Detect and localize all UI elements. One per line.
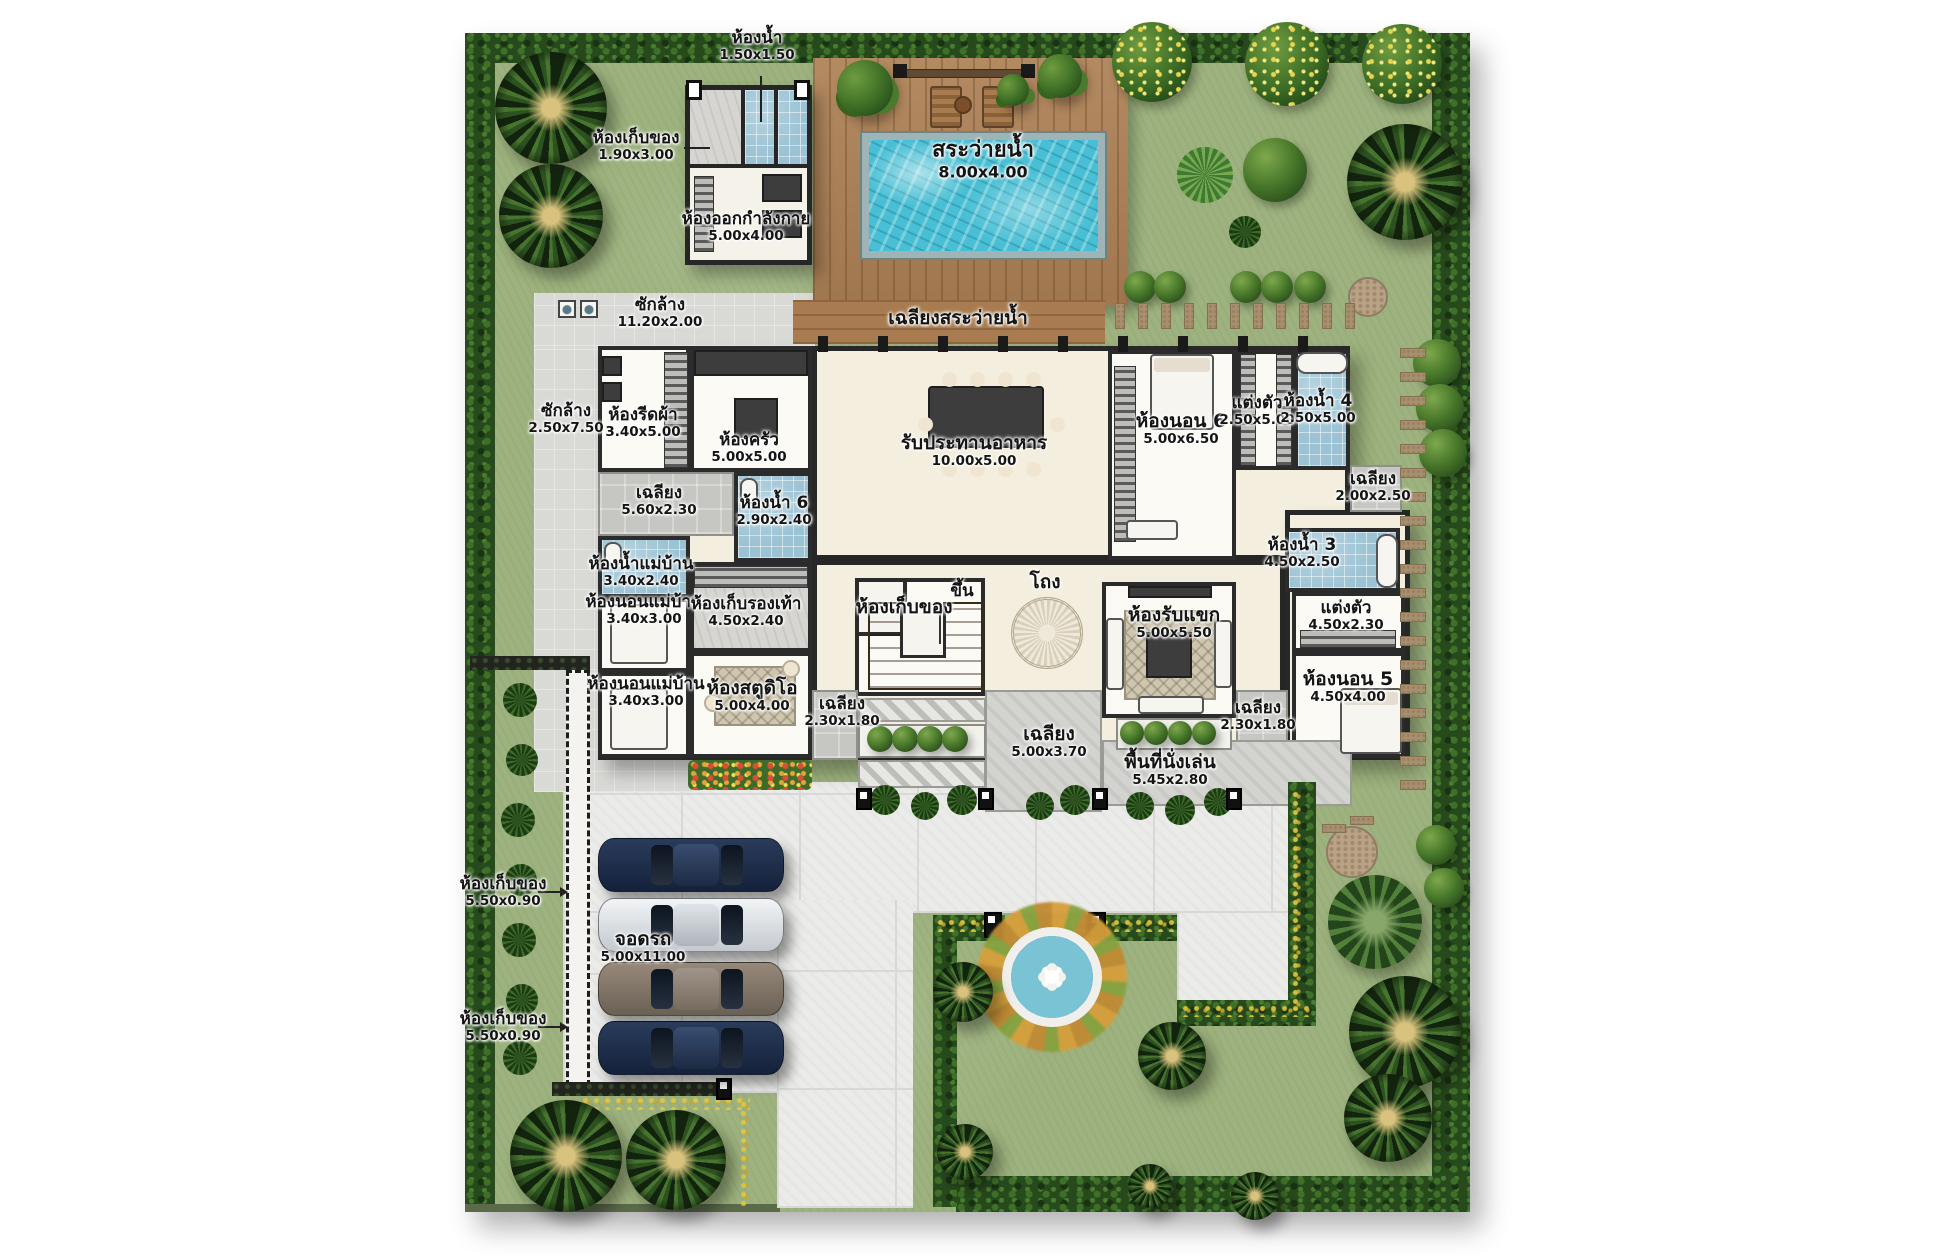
studio-chair <box>782 660 800 678</box>
room-name: ห้องสตูดิโอ <box>706 677 797 699</box>
room-dimension: 2.00x2.50 <box>1335 489 1410 505</box>
site-edge-shadow <box>465 1204 780 1212</box>
stepping-stone <box>1400 540 1426 550</box>
fern-icon <box>506 744 538 776</box>
bush-icon <box>892 726 918 752</box>
bed6-wardrobe <box>1114 366 1136 542</box>
room-name: โถง <box>1030 571 1061 593</box>
room-name: ห้องนอนแม่บ้าน <box>587 674 704 694</box>
room-dimension: 5.00x4.00 <box>706 699 797 715</box>
pergola-post <box>893 64 907 78</box>
room-label-gym: ห้องออกกำลังกาย5.00x4.00 <box>682 209 811 245</box>
room-dimension: 2.50x7.50 <box>528 421 603 437</box>
stepping-stone <box>1400 516 1426 526</box>
fern-icon <box>911 792 939 820</box>
room-label-gstor2: ห้องเก็บของ5.50x0.90 <box>460 1009 547 1045</box>
room-name: ห้องน้ำแม่บ้าน <box>588 554 693 574</box>
stepping-stone <box>1400 588 1426 598</box>
room-dimension: 4.50x2.50 <box>1264 555 1339 571</box>
room-label-ironing: ห้องรีดผ้า3.40x5.00 <box>605 405 680 441</box>
garage-wall-bottom <box>552 1082 722 1096</box>
fern-icon <box>1026 792 1054 820</box>
stepping-stone <box>1400 732 1426 742</box>
bush-icon <box>1124 271 1156 303</box>
sofa <box>1138 696 1204 714</box>
room-dimension: 5.50x0.90 <box>460 1029 547 1045</box>
stepping-stone <box>1400 612 1426 622</box>
wall-post <box>1058 336 1068 352</box>
wall-post <box>938 336 948 352</box>
stepping-stone <box>1115 303 1125 329</box>
stepping-stone <box>1322 303 1332 329</box>
room-label-laundry_left: ซักล้าง2.50x7.50 <box>528 401 603 437</box>
staghorn-tree-icon <box>1328 875 1422 969</box>
tree-icon <box>997 74 1029 106</box>
fern-icon <box>1126 792 1154 820</box>
stepping-stone <box>1230 303 1240 329</box>
bush-icon <box>1416 825 1456 865</box>
fern-icon <box>870 785 900 815</box>
stepping-stone <box>1138 303 1148 329</box>
hall-medallion <box>1011 597 1083 669</box>
bush-icon <box>1168 721 1192 745</box>
room-name: ห้องน้ำ <box>719 28 794 48</box>
garage-post <box>716 1078 732 1100</box>
flower-strip <box>1180 1004 1310 1017</box>
leader-arrow <box>560 1022 568 1032</box>
room-name: ห้องน้ำ 3 <box>1264 535 1339 555</box>
room-name: เฉลียง <box>1220 698 1295 718</box>
room-name: ห้องรับแขก <box>1128 604 1220 626</box>
room-name: สระว่ายน้ำ <box>932 138 1034 164</box>
bush-icon <box>1192 721 1216 745</box>
floor-plan-page: ห้องน้ำ1.50x1.50ห้องเก็บของ1.90x3.00ห้อง… <box>0 0 1960 1260</box>
leader-line <box>684 147 710 149</box>
garage-storage-band <box>566 670 590 1086</box>
fern-icon <box>503 683 537 717</box>
room-label-parking: จอดรถ5.00x11.00 <box>601 928 686 966</box>
room-label-pool: สระว่ายน้ำ8.00x4.00 <box>932 138 1034 183</box>
wall-post <box>818 336 828 352</box>
bush-icon <box>1261 271 1293 303</box>
bathtub-3 <box>1376 534 1398 588</box>
driveway-exit <box>777 900 913 1208</box>
kitchen-counter <box>694 350 808 376</box>
room-label-terr_entry_r: เฉลียง2.30x1.80 <box>1220 698 1295 734</box>
hedge-bottom <box>956 1176 1470 1212</box>
stepping-stone <box>1207 303 1217 329</box>
palm-tree-icon <box>495 52 607 164</box>
stepping-stone <box>1350 816 1374 825</box>
stepping-stone <box>1400 684 1426 694</box>
palm-tree-icon <box>1347 124 1463 240</box>
room-dimension: 4.50x2.40 <box>691 614 802 630</box>
bush-icon <box>1144 721 1168 745</box>
palm-tree-icon <box>1138 1022 1206 1090</box>
room-label-living: ห้องรับแขก5.00x5.50 <box>1128 604 1220 642</box>
bush-icon <box>1419 429 1467 477</box>
room-name: ขึ้น <box>950 581 973 601</box>
room-label-laundry_strip: ซักล้าง11.20x2.00 <box>618 295 703 331</box>
stepping-stone <box>1400 396 1426 406</box>
palm-tree-icon <box>626 1110 726 1210</box>
dining-chairs <box>942 372 957 387</box>
room-name: ห้องนอนแม่บ้าน <box>585 592 702 612</box>
palm-tree-icon <box>1344 1074 1432 1162</box>
fern-icon <box>503 1041 537 1075</box>
car-icon <box>598 838 784 892</box>
room-dimension: 2.30x1.80 <box>1220 718 1295 734</box>
porch-walk-hatch <box>858 760 986 788</box>
storage-room-top <box>690 90 745 168</box>
wall-post <box>794 80 810 100</box>
pergola-post <box>1021 64 1035 78</box>
room-name: รับประทานอาหาร <box>901 432 1047 454</box>
wall-post <box>878 336 888 352</box>
stepping-stone <box>1345 303 1355 329</box>
room-dimension: 3.40x3.00 <box>585 612 702 628</box>
room-name: ห้องออกกำลังกาย <box>682 209 811 229</box>
room-dimension: 4.50x4.00 <box>1303 690 1393 706</box>
room-label-bath4: ห้องน้ำ 42.50x5.00 <box>1280 391 1355 427</box>
porch-column <box>1226 788 1242 810</box>
room-name: ห้องเก็บของ <box>593 128 680 148</box>
room-label-sitting: พื้นที่นั่งเล่น5.45x2.80 <box>1124 751 1215 789</box>
gravel-circle <box>1326 826 1378 878</box>
room-name: เฉลียง <box>1335 469 1410 489</box>
room-dimension: 3.40x3.00 <box>587 694 704 710</box>
room-dimension: 10.00x5.00 <box>901 454 1047 470</box>
room-label-maid_bed2: ห้องนอนแม่บ้าน3.40x3.00 <box>587 674 704 710</box>
fountain-flower <box>1045 970 1059 984</box>
room-label-bed5: ห้องนอน 54.50x4.00 <box>1303 668 1393 706</box>
room-name: ห้องนอน 5 <box>1303 668 1393 690</box>
stepping-stone <box>1276 303 1286 329</box>
room-dimension: 2.90x2.40 <box>736 513 811 529</box>
room-name: พื้นที่นั่งเล่น <box>1124 751 1215 773</box>
room-label-dining: รับประทานอาหาร10.00x5.00 <box>901 432 1047 470</box>
room-label-terr_2025: เฉลียง2.00x2.50 <box>1335 469 1410 505</box>
bush-icon <box>1294 271 1326 303</box>
room-dimension: 5.50x0.90 <box>460 894 547 910</box>
room-name: ห้องน้ำ 4 <box>1280 391 1355 411</box>
fern-icon <box>501 803 535 837</box>
room-label-maid_bed1: ห้องนอนแม่บ้าน3.40x3.00 <box>585 592 702 628</box>
bed6-pillows <box>1154 358 1210 372</box>
car-icon <box>598 1021 784 1075</box>
flower-strip <box>1290 790 1304 1010</box>
flower-strip <box>738 1100 752 1206</box>
room-name: เฉลียง <box>1011 723 1086 745</box>
palm-tree-icon <box>1349 976 1461 1088</box>
room-dimension: 5.00x6.50 <box>1136 432 1226 448</box>
wall-post <box>998 336 1008 352</box>
tree-icon <box>1038 54 1082 98</box>
room-name: ห้องเก็บของ <box>856 596 953 618</box>
room-dimension: 5.60x2.30 <box>621 503 696 519</box>
washer-icon <box>558 300 576 318</box>
room-name: ห้องเก็บรองเท้า <box>691 594 802 614</box>
stepping-stone <box>1400 420 1426 430</box>
fern-icon <box>502 923 536 957</box>
stepping-stone <box>1400 444 1426 454</box>
garage-wall-top <box>470 656 590 670</box>
room-label-studio: ห้องสตูดิโอ5.00x4.00 <box>706 677 797 715</box>
stepping-stone <box>1184 303 1194 329</box>
room-label-kitchen: ห้องครัว5.00x5.00 <box>711 430 786 466</box>
leader-line <box>760 76 762 122</box>
room-dimension: 2.50x5.00 <box>1280 411 1355 427</box>
room-name: จอดรถ <box>601 928 686 950</box>
fern-icon <box>1060 785 1090 815</box>
room-label-shoe: ห้องเก็บรองเท้า4.50x2.40 <box>691 594 802 630</box>
room-label-bath3: ห้องน้ำ 34.50x2.50 <box>1264 535 1339 571</box>
palm-tree-icon <box>933 962 993 1022</box>
bathtub-4 <box>1296 352 1348 374</box>
bush-icon <box>917 726 943 752</box>
deck-table-icon <box>954 96 972 114</box>
room-label-dress5: แต่งตัว4.50x2.30 <box>1308 598 1383 634</box>
stepping-stone <box>1400 660 1426 670</box>
room-dimension: 11.20x2.00 <box>618 315 703 331</box>
room-label-terr_56: เฉลียง5.60x2.30 <box>621 483 696 519</box>
stepping-stone <box>1400 348 1426 358</box>
spider-plant-icon <box>1177 147 1233 203</box>
shoe-rack <box>694 566 808 588</box>
room-name: ห้องครัว <box>711 430 786 450</box>
tree-icon <box>837 60 893 116</box>
palm-tree-icon <box>1128 1164 1172 1208</box>
laundry-appliance <box>602 382 622 402</box>
stepping-stone <box>1400 780 1426 790</box>
bush-icon <box>1424 868 1464 908</box>
palm-tree-icon <box>510 1100 622 1212</box>
stepping-stone <box>1400 636 1426 646</box>
room-dimension: 5.00x5.50 <box>1128 626 1220 642</box>
fern-icon <box>947 785 977 815</box>
room-name: ซักล้าง <box>618 295 703 315</box>
stepping-stone <box>1400 708 1426 718</box>
room-dimension: 3.40x2.40 <box>588 574 693 590</box>
room-dimension: 5.00x11.00 <box>601 950 686 966</box>
room-label-bath_top: ห้องน้ำ1.50x1.50 <box>719 28 794 64</box>
room-dimension: 5.00x5.00 <box>711 450 786 466</box>
room-dimension: 3.40x5.00 <box>605 425 680 441</box>
room-name: ซักล้าง <box>528 401 603 421</box>
porch-column <box>978 788 994 810</box>
room-dimension: 1.90x3.00 <box>593 148 680 164</box>
room-name: ห้องเก็บของ <box>460 1009 547 1029</box>
bush-icon <box>942 726 968 752</box>
room-label-terr_entry_c: เฉลียง5.00x3.70 <box>1011 723 1086 761</box>
gym-wall <box>690 164 807 168</box>
washer-icon <box>580 300 598 318</box>
bath-partition-wall <box>774 90 778 168</box>
sofa <box>1106 618 1124 690</box>
room-dimension: 2.30x1.80 <box>804 714 879 730</box>
room-name: ห้องนอน 6 <box>1136 410 1226 432</box>
laundry-appliance <box>602 356 622 376</box>
room-label-bed6: ห้องนอน 65.00x6.50 <box>1136 410 1226 448</box>
driveway-stub <box>1177 913 1288 1013</box>
room-name: เฉลียง <box>804 694 879 714</box>
fern-icon <box>1229 216 1261 248</box>
bush-icon <box>1154 271 1186 303</box>
flower-bed <box>688 760 812 790</box>
tv-console <box>1128 586 1212 598</box>
room-label-bath6: ห้องน้ำ 62.90x2.40 <box>736 493 811 529</box>
fern-icon <box>1165 795 1195 825</box>
porch-column <box>856 788 872 810</box>
room-name: เฉลียงสระว่ายน้ำ <box>888 307 1028 329</box>
stepping-stone <box>1322 824 1346 833</box>
room-label-storage_top: ห้องเก็บของ1.90x3.00 <box>593 128 680 164</box>
stepping-stone <box>1400 564 1426 574</box>
wall-post <box>1178 336 1188 352</box>
room-name: ห้องเก็บของ <box>460 874 547 894</box>
room-dimension: 4.50x2.30 <box>1308 618 1383 634</box>
room-label-terr_entry_l: เฉลียง2.30x1.80 <box>804 694 879 730</box>
porch-column <box>1092 788 1108 810</box>
bush-icon <box>1120 721 1144 745</box>
stepping-stone <box>1161 303 1171 329</box>
room-dimension: 5.00x3.70 <box>1011 745 1086 761</box>
palm-tree-icon <box>499 164 603 268</box>
wall-post <box>686 80 702 100</box>
room-dimension: 5.00x4.00 <box>682 229 811 245</box>
leader-arrow <box>560 887 568 897</box>
south-west-apron <box>534 758 700 792</box>
car-icon <box>598 962 784 1016</box>
flowering-bush-icon <box>1245 22 1329 106</box>
flowering-bush-icon <box>1112 22 1192 102</box>
stepping-stone <box>1400 756 1426 766</box>
palm-tree-icon <box>1231 1172 1279 1220</box>
bush-icon <box>1230 271 1262 303</box>
stepping-stone <box>1253 303 1263 329</box>
room-label-maid_bath: ห้องน้ำแม่บ้าน3.40x2.40 <box>588 554 693 590</box>
bed6-bench <box>1126 520 1178 540</box>
palm-tree-icon <box>937 1124 993 1180</box>
room-dimension: 5.45x2.80 <box>1124 773 1215 789</box>
wall-post <box>1238 336 1248 352</box>
treadmill-icon <box>762 174 802 202</box>
room-name: ห้องน้ำ 6 <box>736 493 811 513</box>
room-name: ห้องรีดผ้า <box>605 405 680 425</box>
wall-post <box>1118 336 1128 352</box>
room-label-pool_terrace: เฉลียงสระว่ายน้ำ <box>888 307 1028 329</box>
stepping-stone <box>1400 372 1426 382</box>
bush-icon <box>1243 138 1307 202</box>
room-label-up: ขึ้น <box>950 581 973 601</box>
room-label-hall: โถง <box>1030 571 1061 593</box>
room-name: เฉลียง <box>621 483 696 503</box>
wall-post <box>1298 336 1308 352</box>
room-label-storage_stairs: ห้องเก็บของ <box>856 596 953 618</box>
stepping-stone <box>1299 303 1309 329</box>
room-dimension: 1.50x1.50 <box>719 48 794 64</box>
room-name: แต่งตัว <box>1308 598 1383 618</box>
flowering-bush-icon <box>1362 24 1442 104</box>
room-label-gstor1: ห้องเก็บของ5.50x0.90 <box>460 874 547 910</box>
room-dimension: 8.00x4.00 <box>932 164 1034 183</box>
